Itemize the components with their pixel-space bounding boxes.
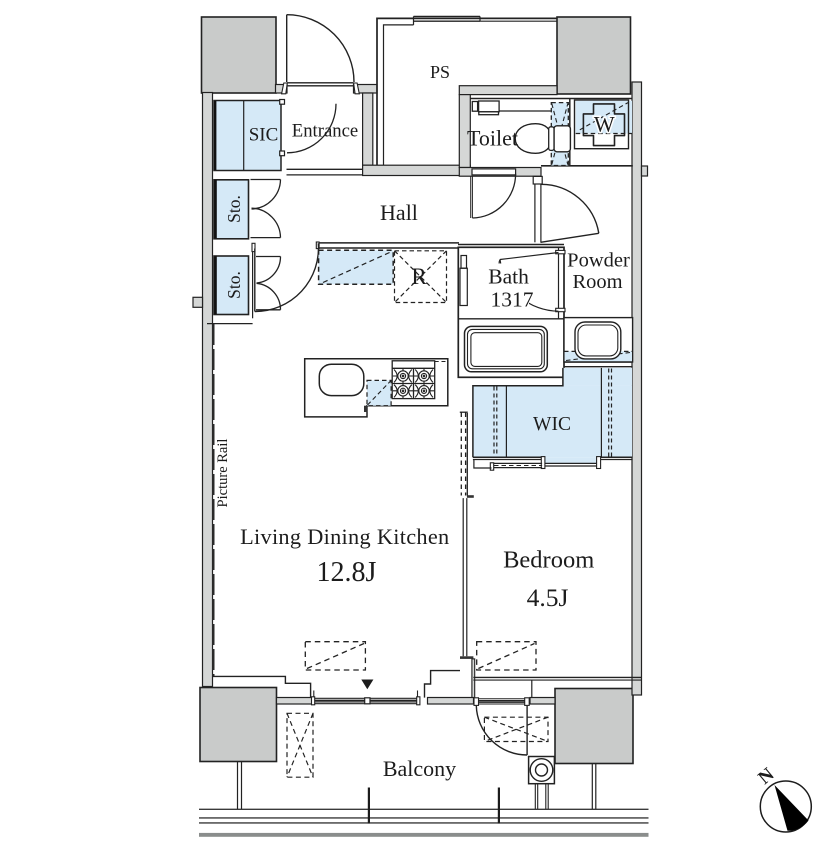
svg-text:WIC: WIC — [533, 414, 571, 435]
svg-text:Bedroom: Bedroom — [503, 547, 594, 574]
svg-text:Hall: Hall — [380, 200, 418, 225]
svg-text:PS: PS — [430, 62, 450, 82]
svg-text:R: R — [411, 264, 427, 289]
svg-text:1317: 1317 — [491, 287, 534, 311]
svg-text:Living Dining Kitchen: Living Dining Kitchen — [240, 524, 449, 549]
svg-text:12.8J: 12.8J — [317, 557, 377, 588]
svg-text:4.5J: 4.5J — [527, 583, 569, 612]
svg-text:Bath: Bath — [488, 265, 529, 289]
svg-text:Sto.: Sto. — [224, 271, 244, 299]
svg-text:Entrance: Entrance — [292, 120, 358, 141]
svg-text:Powder: Powder — [567, 250, 630, 272]
svg-text:Sto.: Sto. — [224, 195, 244, 223]
svg-text:Balcony: Balcony — [383, 756, 456, 781]
svg-text:SIC: SIC — [249, 125, 279, 146]
svg-text:Toilet: Toilet — [467, 126, 518, 151]
svg-text:W: W — [594, 112, 615, 137]
svg-text:Room: Room — [572, 271, 622, 293]
svg-text:Picture Rail: Picture Rail — [215, 439, 231, 508]
